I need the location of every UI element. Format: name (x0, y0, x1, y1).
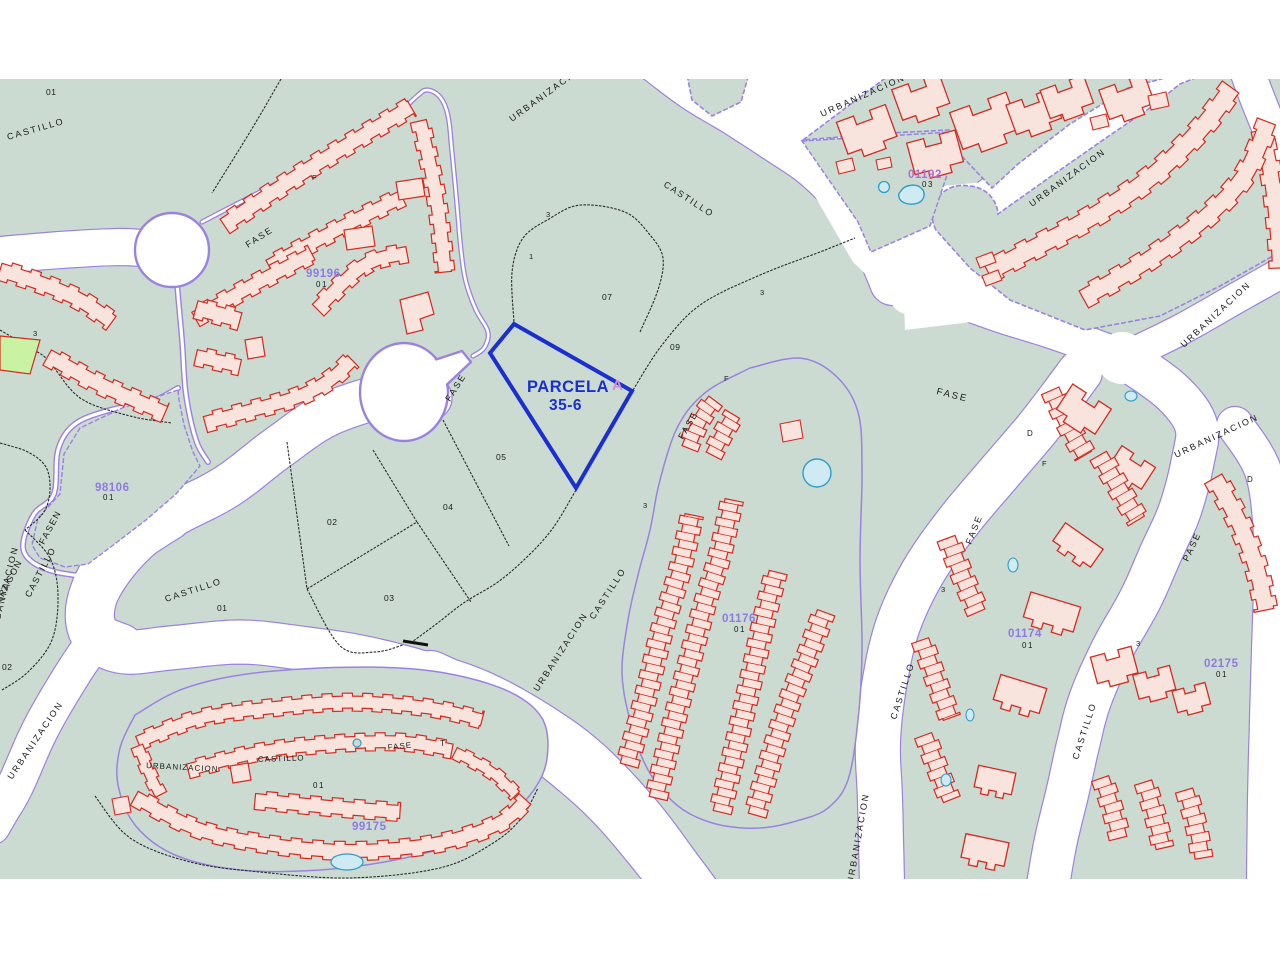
svg-text:F: F (1042, 459, 1048, 468)
svg-text:A: A (612, 377, 623, 394)
svg-text:03: 03 (384, 593, 394, 603)
svg-text:D: D (1247, 475, 1254, 484)
svg-text:05: 05 (496, 452, 506, 462)
svg-text:09: 09 (670, 342, 680, 352)
svg-text:99175: 99175 (352, 821, 387, 833)
svg-text:3: 3 (643, 501, 649, 510)
svg-text:01: 01 (46, 87, 56, 97)
svg-text:F: F (724, 374, 730, 383)
svg-text:PARCELA: PARCELA (527, 378, 609, 396)
svg-text:07: 07 (602, 292, 612, 302)
svg-text:01: 01 (1216, 670, 1228, 679)
svg-text:35-6: 35-6 (549, 397, 582, 414)
svg-text:CASTILLO: CASTILLO (258, 753, 305, 764)
svg-text:99196: 99196 (306, 268, 340, 280)
svg-text:01176: 01176 (722, 613, 756, 625)
svg-text:3: 3 (33, 329, 39, 338)
svg-text:01: 01 (103, 493, 115, 502)
svg-text:T: T (440, 739, 446, 748)
svg-text:01: 01 (316, 280, 328, 289)
svg-text:02: 02 (2, 662, 12, 672)
svg-text:3: 3 (1136, 639, 1142, 648)
svg-text:3: 3 (760, 288, 766, 297)
svg-text:02: 02 (327, 517, 337, 527)
svg-text:D: D (1027, 429, 1034, 438)
svg-text:01: 01 (217, 603, 227, 613)
svg-text:02175: 02175 (1204, 658, 1239, 670)
svg-text:F: F (312, 173, 318, 182)
svg-text:3: 3 (941, 585, 947, 594)
svg-text:1: 1 (529, 252, 535, 261)
svg-text:01: 01 (1022, 641, 1034, 650)
svg-text:01174: 01174 (1008, 628, 1042, 640)
svg-text:04: 04 (443, 502, 453, 512)
svg-text:01: 01 (313, 781, 325, 790)
svg-text:01: 01 (734, 625, 746, 634)
svg-text:3: 3 (546, 210, 552, 219)
svg-text:03: 03 (922, 180, 934, 189)
